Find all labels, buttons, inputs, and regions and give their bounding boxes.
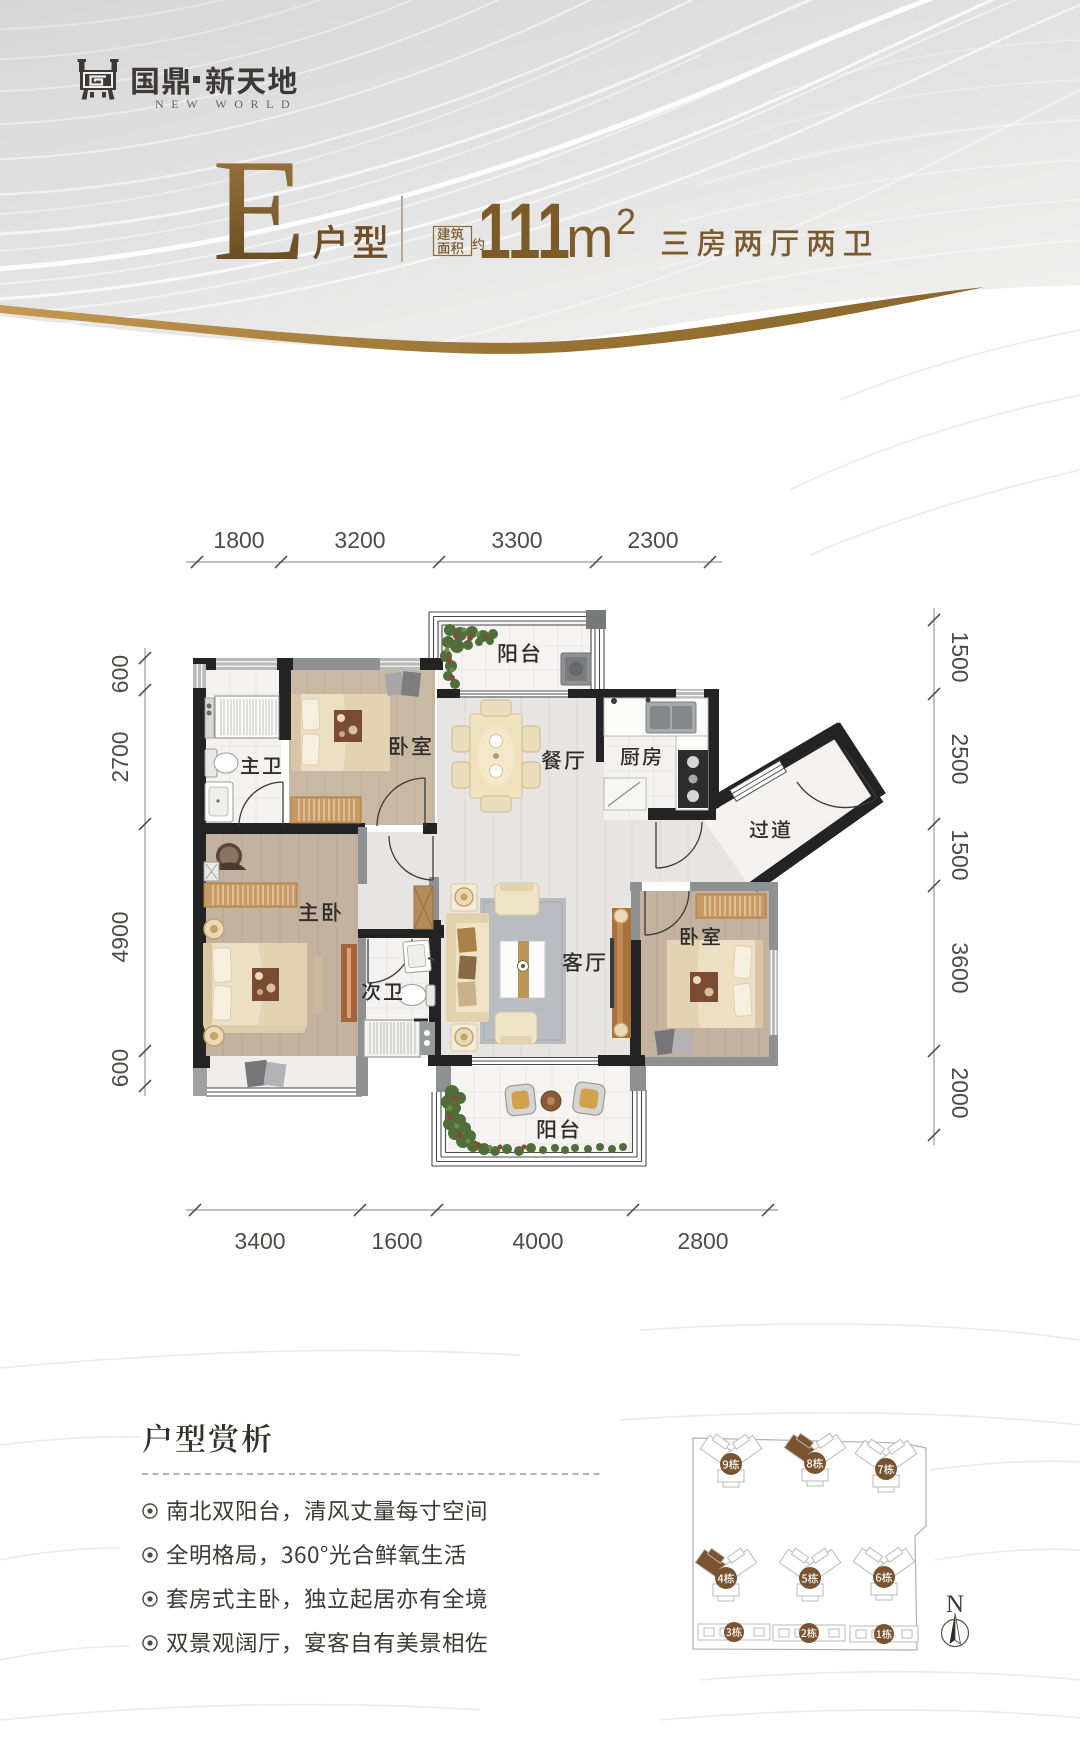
svg-text:111: 111 — [478, 186, 570, 275]
svg-text:E: E — [212, 129, 307, 291]
svg-text:2800: 2800 — [677, 1228, 728, 1254]
svg-text:600: 600 — [107, 1049, 133, 1087]
svg-text:3600: 3600 — [947, 942, 973, 993]
svg-text:NEW WORLD: NEW WORLD — [155, 97, 297, 111]
svg-text:2700: 2700 — [107, 731, 133, 782]
svg-text:4900: 4900 — [107, 911, 133, 962]
svg-text:1500: 1500 — [947, 829, 973, 880]
svg-text:2000: 2000 — [947, 1067, 973, 1118]
svg-text:3400: 3400 — [234, 1228, 285, 1254]
svg-text:1600: 1600 — [371, 1228, 422, 1254]
svg-text:1500: 1500 — [947, 631, 973, 682]
svg-text:3300: 3300 — [491, 527, 542, 553]
svg-text:2: 2 — [616, 201, 636, 242]
svg-text:2500: 2500 — [947, 733, 973, 784]
svg-text:3200: 3200 — [334, 527, 385, 553]
svg-text:m: m — [566, 206, 613, 270]
svg-text:2300: 2300 — [627, 527, 678, 553]
svg-text:4000: 4000 — [512, 1228, 563, 1254]
svg-text:600: 600 — [107, 655, 133, 693]
svg-text:1800: 1800 — [213, 527, 264, 553]
